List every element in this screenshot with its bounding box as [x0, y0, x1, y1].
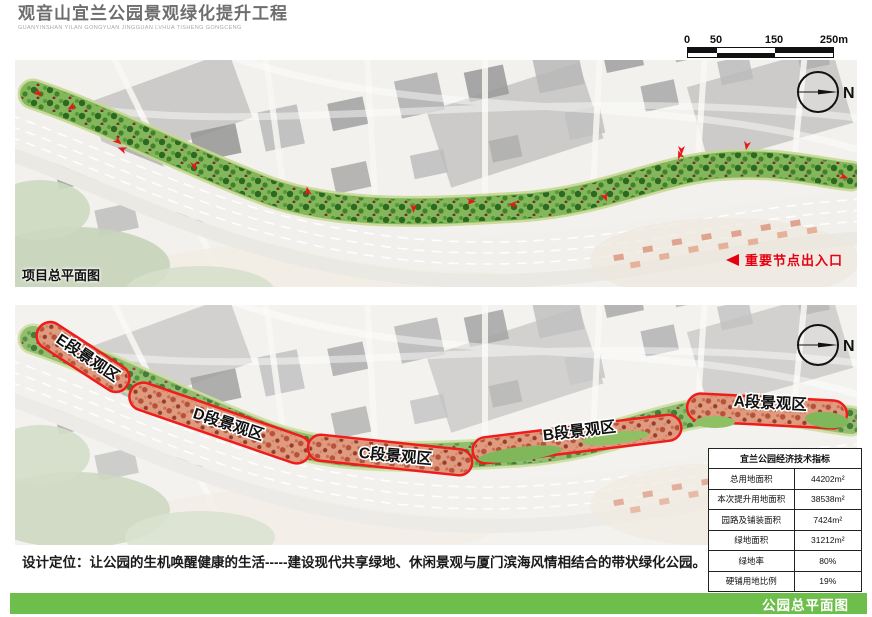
row-label: 绿地面积	[709, 531, 795, 551]
table-row: 硬铺用地比例 19%	[709, 572, 861, 592]
row-label: 园路及铺装面积	[709, 510, 795, 530]
scale-tick-50: 50	[710, 34, 722, 46]
project-master-plan-map: N 项目总平面图 重要节点出入口	[15, 60, 857, 287]
row-value: 44202m²	[795, 469, 861, 489]
entrance-legend: 重要节点出入口	[726, 250, 843, 269]
scale-bar-labels: 0 50 150 250m	[687, 34, 847, 46]
design-positioning-text: 设计定位：让公园的生机唤醒健康的生活-----建设现代共享绿地、休闲景观与厦门滨…	[22, 551, 722, 571]
table-row: 本次提升用地面积 38538m²	[709, 490, 861, 511]
table-row: 绿地面积 31212m²	[709, 531, 861, 552]
red-arrow-icon	[726, 254, 739, 266]
table-row: 园路及铺装面积 7424m²	[709, 510, 861, 531]
row-label: 本次提升用地面积	[709, 490, 795, 510]
table-row: 总用地面积 44202m²	[709, 469, 861, 490]
row-value: 19%	[795, 572, 861, 592]
entrance-legend-label: 重要节点出入口	[745, 250, 843, 269]
scale-tick-150: 150	[765, 34, 783, 46]
plan-board: 观音山宜兰公园景观绿化提升工程 GUANYINSHAN YILAN GONGYU…	[0, 0, 872, 617]
table-row: 绿地率 80%	[709, 551, 861, 572]
scale-bar: 0 50 150 250m	[687, 34, 847, 58]
scale-tick-0: 0	[684, 34, 690, 46]
row-value: 38538m²	[795, 490, 861, 510]
row-label: 硬铺用地比例	[709, 572, 795, 592]
row-value: 80%	[795, 551, 861, 571]
scale-bar-segments	[687, 47, 834, 58]
row-value: 7424m²	[795, 510, 861, 530]
footer-title-bar: 公园总平面图	[10, 593, 867, 614]
compass-north-label: N	[843, 338, 855, 355]
panel1-caption: 项目总平面图	[22, 265, 100, 284]
row-value: 31212m²	[795, 531, 861, 551]
page-subtitle: GUANYINSHAN YILAN GONGYUAN JINGGUAN LVHU…	[18, 25, 288, 31]
page-title: 观音山宜兰公园景观绿化提升工程	[18, 5, 288, 24]
indicators-table: 宜兰公园经济技术指标 总用地面积 44202m² 本次提升用地面积 38538m…	[708, 448, 862, 592]
row-label: 总用地面积	[709, 469, 795, 489]
scale-tick-250: 250m	[820, 34, 848, 46]
footer-title-label: 公园总平面图	[762, 594, 849, 614]
indicators-table-title: 宜兰公园经济技术指标	[709, 449, 861, 469]
compass-north-label: N	[843, 85, 855, 102]
header: 观音山宜兰公园景观绿化提升工程 GUANYINSHAN YILAN GONGYU…	[18, 5, 288, 31]
